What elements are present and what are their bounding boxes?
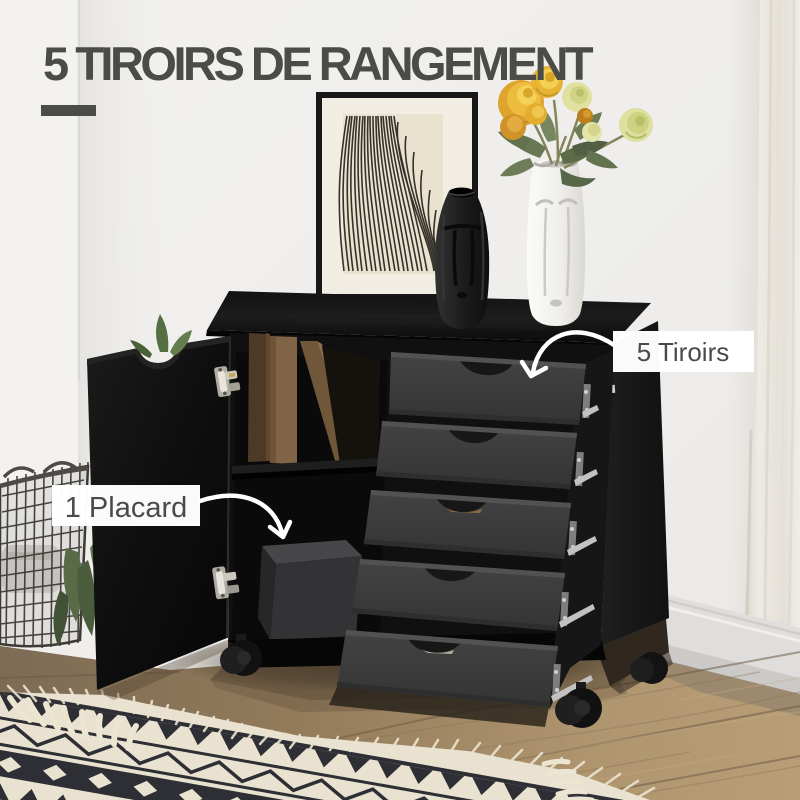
svg-text:1 Placard: 1 Placard — [65, 492, 188, 524]
svg-text:5 TIROIRS DE RANGEMENT: 5 TIROIRS DE RANGEMENT — [43, 37, 594, 90]
svg-text:5 Tiroirs: 5 Tiroirs — [637, 337, 729, 367]
